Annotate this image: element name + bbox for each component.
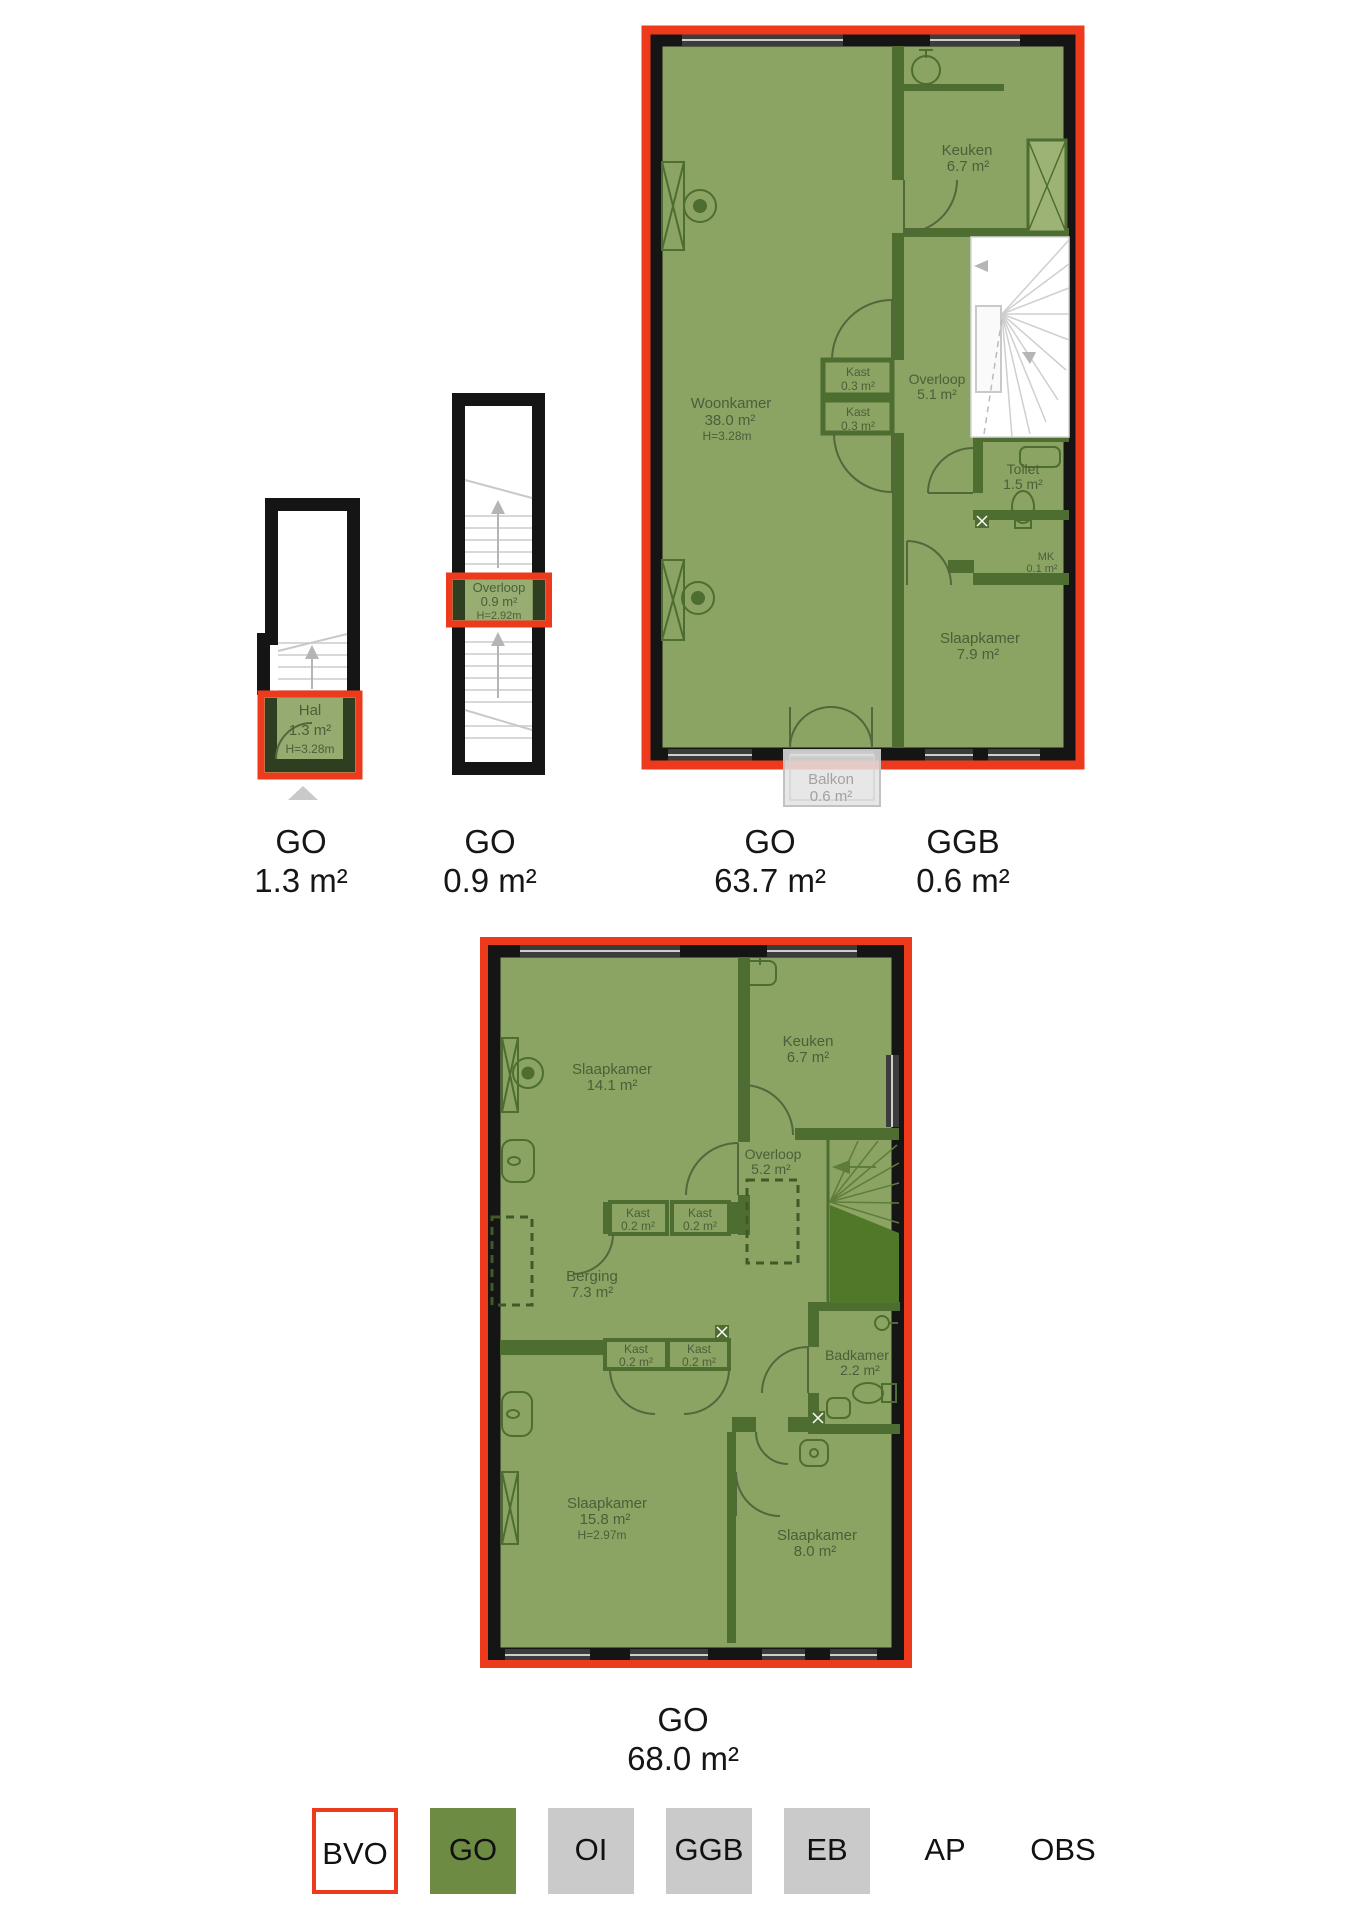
room-area-keuken: 6.7 m² [787,1049,830,1066]
plan-second-floor: Kast 0.2 m² Kast 0.2 m² Kast 0.2 m² Kast… [478,935,920,1677]
room-label-berging: Berging [566,1268,618,1285]
area-label-go-2: GO 0.9 m² [380,822,600,900]
room-label-kast1: Kast [626,1206,651,1220]
plan-overloop-floor: Overloop 0.9 m² H=2.92m [446,390,552,780]
room-area-woonkamer: 38.0 m² [705,412,756,429]
go-area-hal: Hal 1.3 m² H=3.28m [261,694,359,776]
legend-item-eb: EB [784,1808,870,1894]
area-value: 0.6 m² [853,861,1073,900]
room-area-slaapkamer3: 8.0 m² [794,1543,837,1560]
room-height-hal: H=3.28m [285,742,334,756]
room-area-keuken: 6.7 m² [947,158,990,175]
room-label-woonkamer: Woonkamer [691,395,772,412]
north-triangle-icon [288,786,318,800]
room-area-kast1: 0.2 m² [621,1219,655,1233]
room-area-overloop: 0.9 m² [481,594,519,609]
vent-icon [975,514,989,528]
area-label-go-3: GO 63.7 m² [660,822,880,900]
legend-item-go: GO [430,1808,516,1894]
plan-hal-floor: Hal 1.3 m² H=3.28m [252,493,370,805]
room-label-kast2: Kast [688,1206,713,1220]
room-label-slaapkamer2: Slaapkamer [567,1495,647,1512]
room-height-slaapkamer2: H=2.97m [577,1528,626,1542]
area-code: GGB [853,822,1073,861]
room-label-keuken: Keuken [783,1033,834,1050]
go-area-overloop: Overloop 0.9 m² H=2.92m [449,576,549,624]
area-value: 1.3 m² [191,861,411,900]
vent-icon [715,1325,729,1339]
room-area-kast3: 0.2 m² [619,1355,653,1369]
room-label-overloop: Overloop [745,1146,802,1162]
legend-item-oi: OI [548,1808,634,1894]
room-label-slaapkamer1: Slaapkamer [572,1061,652,1078]
room-area-berging: 7.3 m² [571,1284,614,1301]
room-area-kast1: 0.3 m² [841,379,875,393]
room-height-overloop: H=2.92m [477,610,522,622]
room-area-hal: 1.3 m² [289,722,332,739]
room-label-slaapkamer: Slaapkamer [940,630,1020,647]
area-label-go-1: GO 1.3 m² [191,822,411,900]
area-label-ggb: GGB 0.6 m² [853,822,1073,900]
room-label-mk: MK [1038,551,1055,563]
room-label-kast4: Kast [687,1342,712,1356]
area-code: GO [573,1700,793,1739]
area-code: GO [660,822,880,861]
room-label-kast2: Kast [846,405,871,419]
legend-item-obs: OBS [1020,1808,1106,1894]
room-label-badkamer: Badkamer [825,1347,889,1363]
area-value: 68.0 m² [573,1739,793,1778]
kast-closets: Kast 0.3 m² Kast 0.3 m² [823,360,892,433]
floorplan-sheet: Hal 1.3 m² H=3.28m [0,0,1358,1920]
room-label-kast3: Kast [624,1342,649,1356]
room-area-kast4: 0.2 m² [682,1355,716,1369]
room-area-balkon: 0.6 m² [810,788,853,805]
room-label-kast1: Kast [846,365,871,379]
up-arrow-icon [491,500,505,568]
area-code: GO [380,822,600,861]
plan-first-floor: Kast 0.3 m² Kast 0.3 m² [638,22,1090,812]
area-value: 0.9 m² [380,861,600,900]
room-area-toilet: 1.5 m² [1003,476,1043,492]
stairwell [971,237,1069,437]
room-area-mk: 0.1 m² [1026,563,1058,575]
room-area-overloop: 5.2 m² [751,1161,791,1177]
balkon: Balkon 0.6 m² [784,750,880,806]
room-label-balkon: Balkon [808,771,854,788]
room-label-toilet: Toilet [1007,461,1040,477]
room-area-slaapkamer1: 14.1 m² [587,1077,638,1094]
legend-item-ap: AP [902,1808,988,1894]
room-area-badkamer: 2.2 m² [840,1362,880,1378]
room-height-woonkamer: H=3.28m [702,429,751,443]
room-area-kast2: 0.3 m² [841,419,875,433]
walls [257,498,360,695]
legend-item-ggb: GGB [666,1808,752,1894]
room-label-overloop: Overloop [473,580,526,595]
area-label-go-4: GO 68.0 m² [573,1700,793,1778]
room-area-kast2: 0.2 m² [683,1219,717,1233]
legend-item-bvo: BVO [312,1808,398,1894]
area-code: GO [191,822,411,861]
area-value: 63.7 m² [660,861,880,900]
vent-icon [811,1411,825,1425]
room-label-overloop: Overloop [909,371,966,387]
room-area-slaapkamer2: 15.8 m² [580,1511,631,1528]
room-label-slaapkamer3: Slaapkamer [777,1527,857,1544]
room-label-hal: Hal [299,702,322,719]
room-label-keuken: Keuken [942,142,993,159]
room-area-slaapkamer: 7.9 m² [957,646,1000,663]
room-area-overloop: 5.1 m² [917,386,957,402]
